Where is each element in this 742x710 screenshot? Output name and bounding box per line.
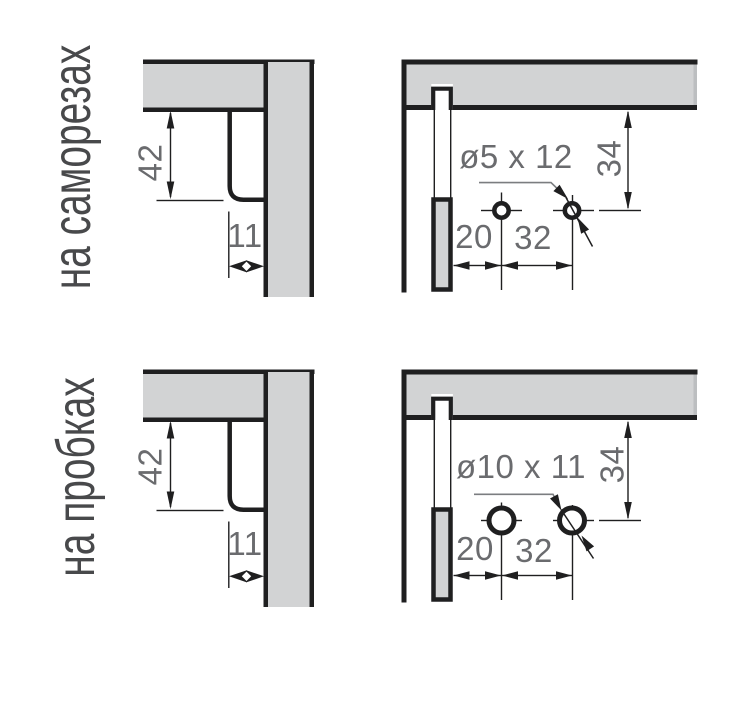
row-label-plugs: на пробках <box>48 355 104 600</box>
row-label-screws: на саморезах <box>44 45 100 290</box>
callout-leader-line <box>479 183 566 197</box>
dim-label-11: 11 <box>215 527 275 560</box>
through-arrowhead-icon <box>578 218 590 234</box>
drill-hole <box>565 203 579 217</box>
row1-left-figure <box>143 60 315 298</box>
drill-hole <box>494 203 508 217</box>
dim-label-32: 32 <box>503 221 563 254</box>
dim-label-11: 11 <box>215 219 275 252</box>
dim-label-20: 20 <box>444 220 504 253</box>
dim-label-20: 20 <box>445 532 505 565</box>
dim-label-34: 34 <box>593 129 626 189</box>
dim-label-42: 42 <box>134 437 167 497</box>
furniture-drilling-diagram: на саморезах 42 11 ø5 x 12 34 20 32 на п… <box>0 0 742 710</box>
hole-callout-label: ø5 x 12 <box>436 140 596 173</box>
diagram-linework <box>0 0 742 710</box>
dim-label-42: 42 <box>134 133 167 193</box>
row1-right-figure <box>402 60 698 293</box>
dim-label-34: 34 <box>596 435 629 495</box>
callout-leader-line <box>474 494 560 507</box>
dim-label-32: 32 <box>504 534 564 567</box>
hole-callout-label: ø10 x 11 <box>421 450 621 483</box>
row2-left-figure <box>143 370 315 608</box>
leader-arrowhead-icon <box>550 494 562 510</box>
